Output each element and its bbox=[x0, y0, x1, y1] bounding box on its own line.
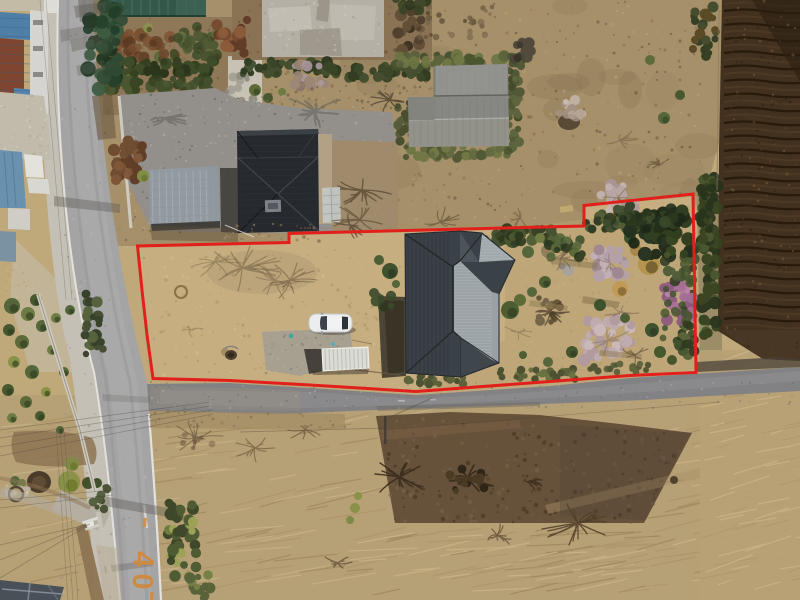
svg-text:40: 40 bbox=[125, 551, 159, 596]
